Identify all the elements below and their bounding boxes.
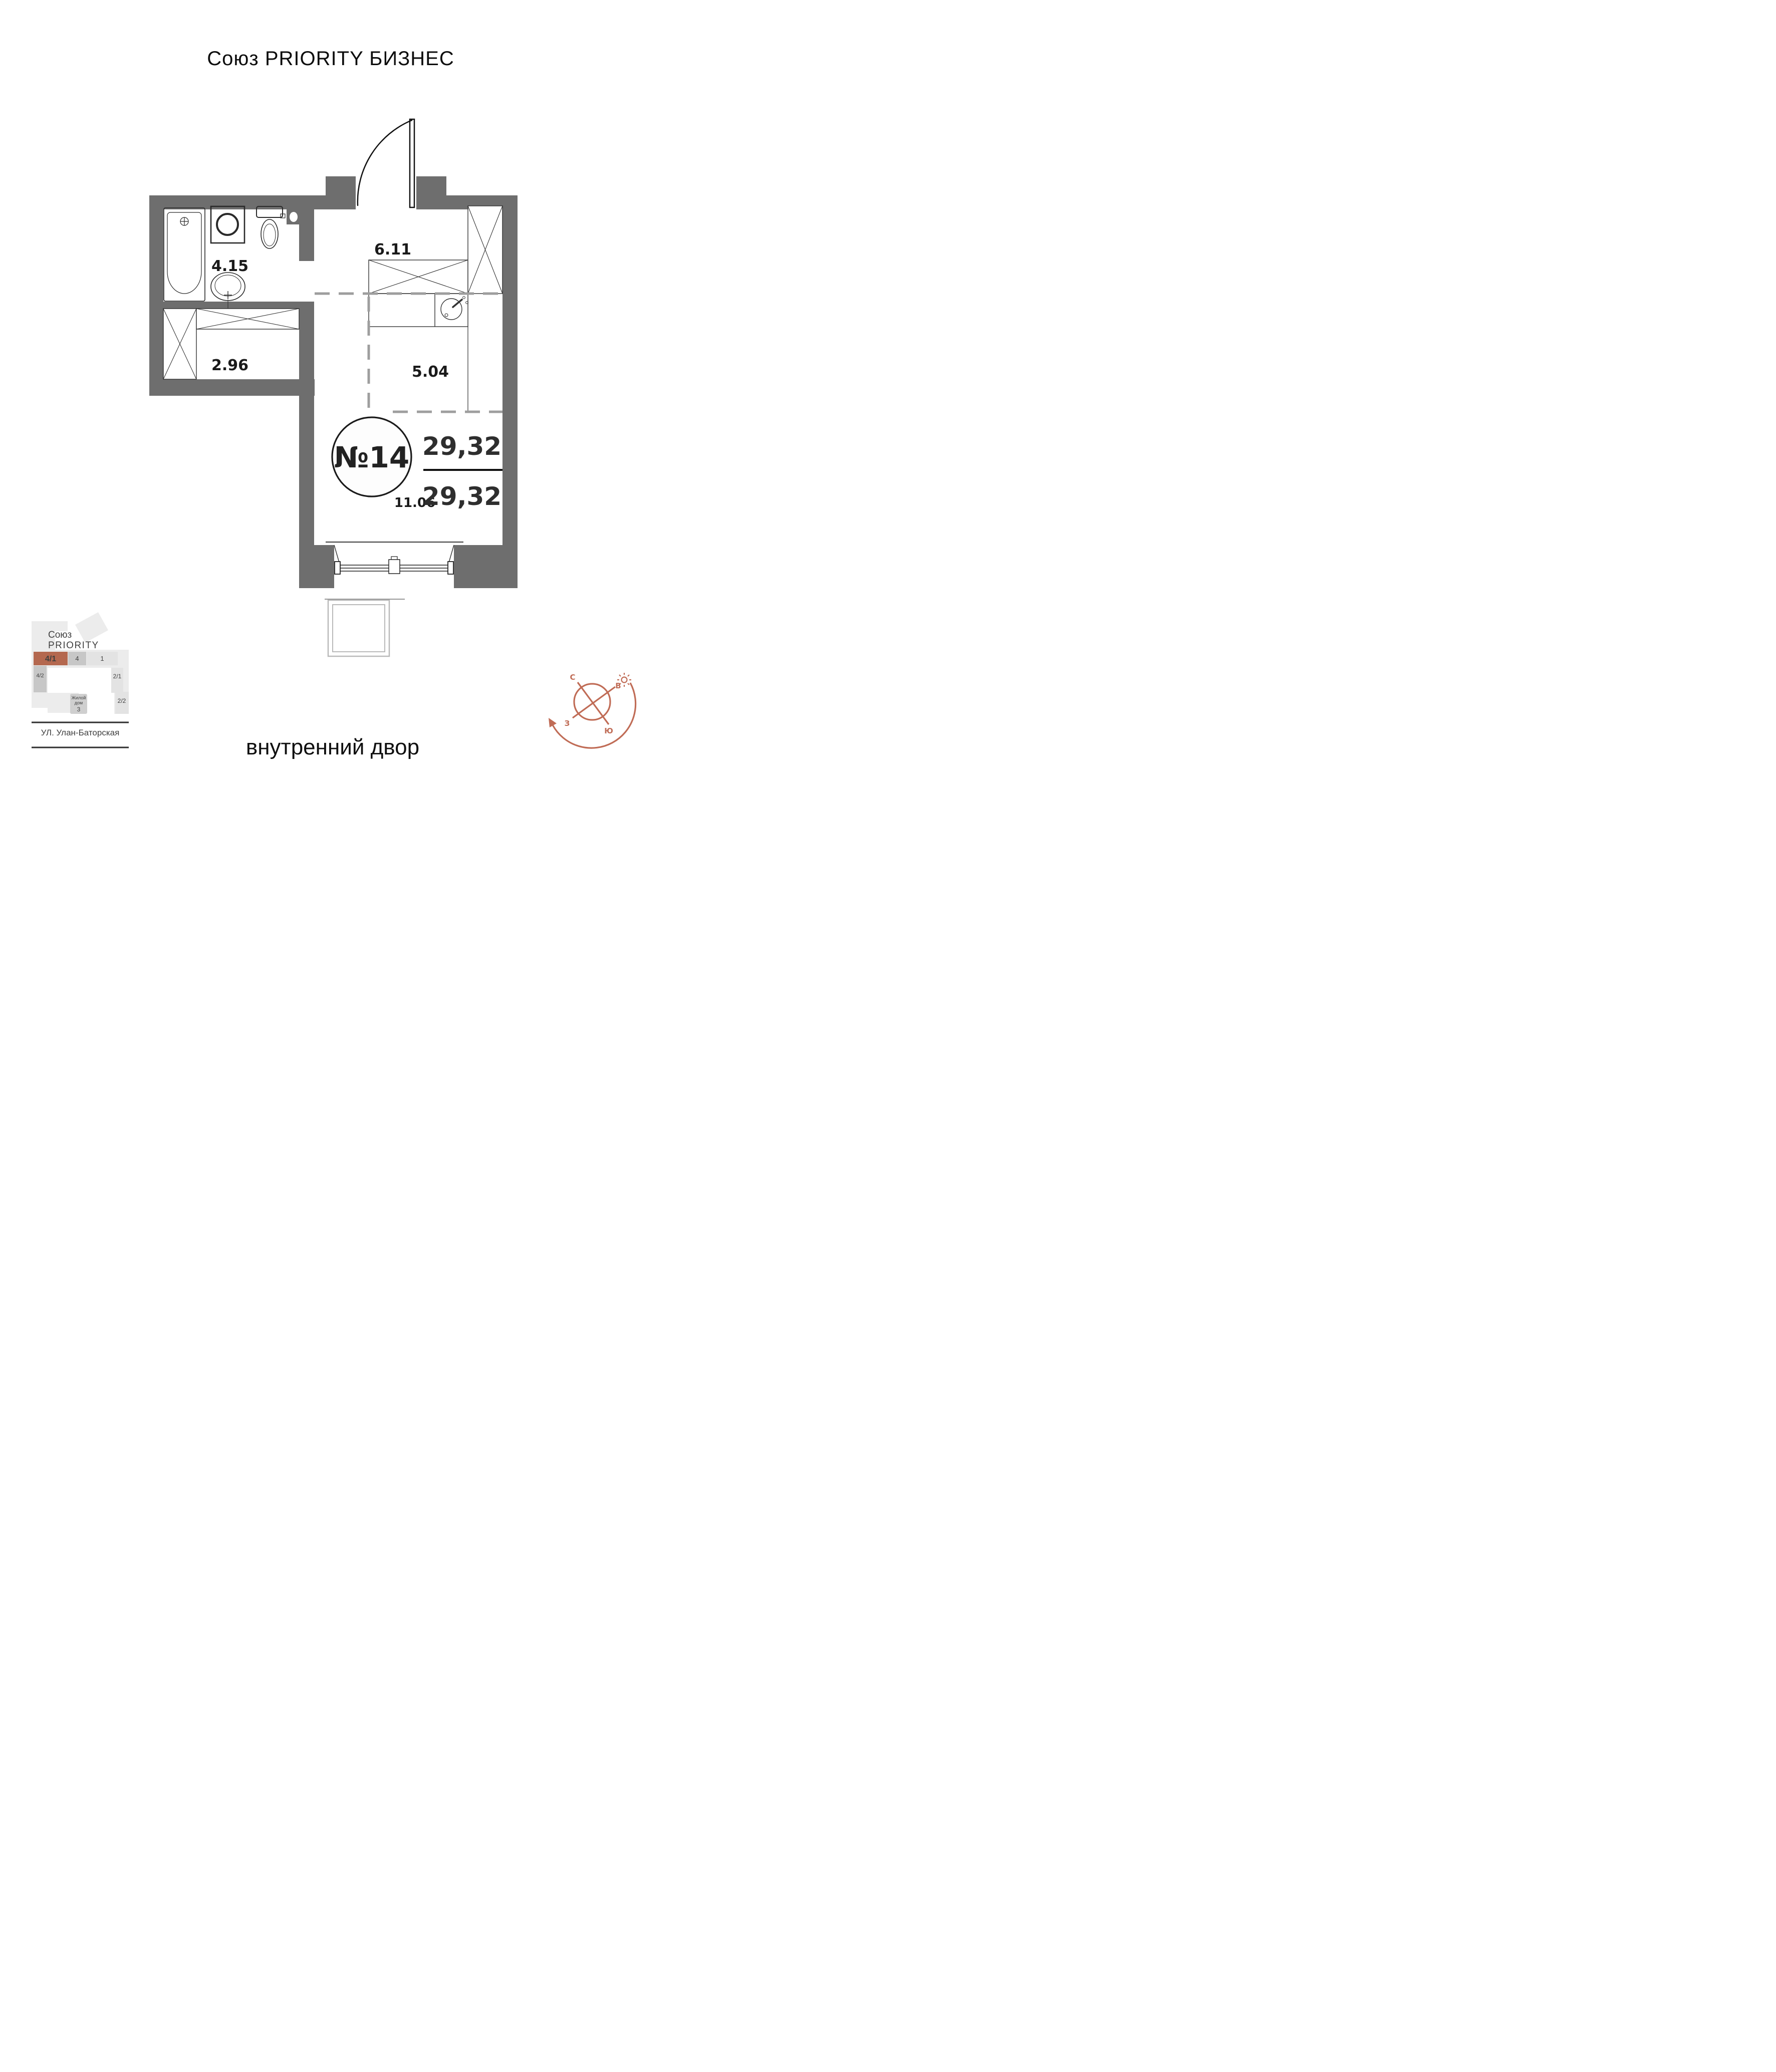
wardrobe-hall-vertical [468, 206, 502, 294]
site-project-line1: Союз [48, 630, 72, 640]
area-fraction: 29,32 29,32 [422, 432, 502, 511]
wall-bath-right-upper [299, 206, 314, 261]
compass-south: Ю [604, 726, 613, 735]
site-block-2-1 [111, 668, 123, 693]
compass-east: В [615, 681, 621, 690]
compass-rotation-arc [553, 683, 636, 748]
wall-closet-bottom [149, 379, 315, 396]
room-label-kitchen: 5.04 [412, 363, 449, 381]
floorplan-page: Союз PRIORITY БИЗНЕС [0, 0, 661, 771]
door-leaf [410, 119, 414, 207]
site-block-4-2 [34, 666, 47, 692]
apartment-number: №14 [334, 440, 410, 474]
area-total: 29,32 [422, 432, 501, 461]
compass-west: З [565, 719, 570, 728]
wardrobe-closet-horizontal [196, 309, 299, 329]
wardrobe-hall-horizontal [369, 260, 468, 294]
wardrobe-closet-vertical [163, 309, 196, 379]
wall-entry-stub-left [326, 176, 356, 209]
vent-hole-bathroom-icon [290, 212, 298, 222]
wall-window-corner-left [299, 545, 334, 588]
site-block-4-label: 4 [75, 655, 79, 662]
site-block-2-2-label: 2/2 [118, 697, 126, 704]
area-living: 29,32 [422, 482, 501, 511]
apartment-number-badge: №14 [332, 417, 411, 496]
site-house-3-line3: 3 [77, 706, 81, 713]
compass-north: С [570, 673, 575, 682]
wall-right [502, 195, 518, 545]
site-house-3: Жилой дом 3 [70, 694, 87, 714]
window-mullion [389, 560, 400, 574]
site-house-3-line2: дом [75, 700, 83, 705]
street-name: УЛ. Улан-Баторская [41, 728, 120, 737]
toilet-icon [257, 206, 285, 248]
window-bay [325, 542, 463, 656]
bathtub-icon [164, 208, 205, 301]
courtyard-label: внутренний двор [246, 735, 419, 759]
site-block-4-2-label: 4/2 [36, 673, 44, 679]
wall-bath-bottom [163, 302, 299, 309]
wall-bath-right-lower [299, 302, 314, 379]
kitchen-sink-icon [441, 297, 468, 320]
compass-axis-we [573, 687, 615, 718]
page-title: Союз PRIORITY БИЗНЕС [207, 48, 454, 70]
door-swing-arc [358, 120, 412, 205]
washing-machine-icon [211, 206, 244, 243]
room-label-hallway: 6.11 [374, 241, 411, 258]
wall-entry-stub-right [416, 176, 446, 209]
room-label-closet: 2.96 [211, 357, 248, 374]
room-label-bathroom: 4.15 [211, 257, 248, 275]
kitchen-counter [369, 294, 468, 412]
site-block-4-1-label: 4/1 [45, 655, 56, 663]
zone-dashed-lines [315, 294, 502, 420]
wall-left [149, 195, 163, 396]
site-block-1-label: 1 [100, 655, 104, 662]
window-cap-right [448, 562, 453, 574]
wall-livingroom-left [299, 396, 314, 545]
balcony-outline [328, 600, 389, 656]
compass [553, 673, 636, 748]
site-house-3-line1: Жилой [72, 695, 86, 700]
site-plan: Союз PRIORITY 4/1 4 1 4/2 2/1 2/2 Жилой … [32, 612, 129, 747]
entry-door [358, 119, 414, 207]
window-cap-left [335, 562, 340, 574]
site-project-line2: PRIORITY [48, 640, 99, 651]
wardrobes [163, 206, 502, 379]
site-block-2-1-label: 2/1 [113, 673, 122, 680]
wall-window-corner-right [454, 545, 518, 588]
